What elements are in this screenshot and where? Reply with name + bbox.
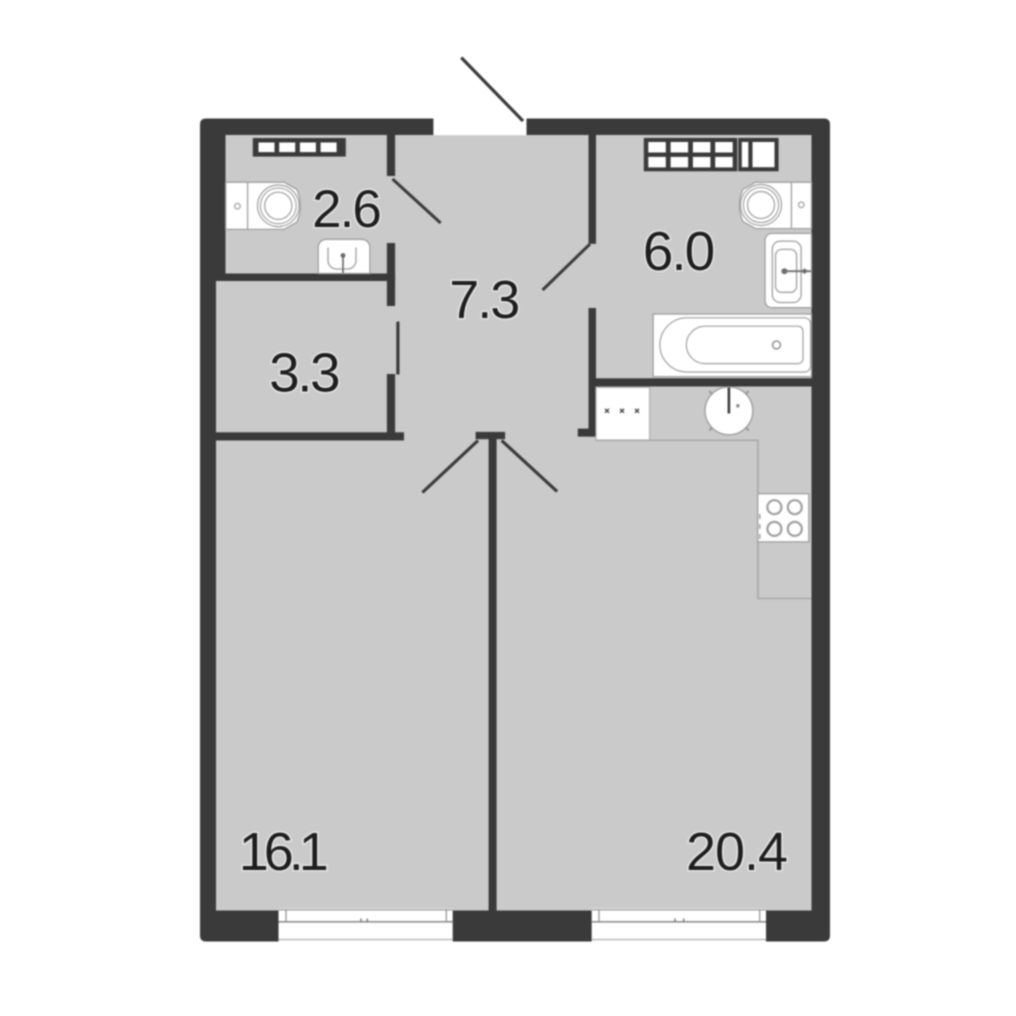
svg-text:3.3: 3.3: [269, 342, 339, 404]
svg-text:7.3: 7.3: [449, 270, 518, 330]
svg-text:2.6: 2.6: [312, 180, 380, 239]
svg-text:16.1: 16.1: [239, 822, 327, 882]
svg-text:6.0: 6.0: [643, 220, 714, 282]
svg-text:20.4: 20.4: [686, 822, 787, 882]
